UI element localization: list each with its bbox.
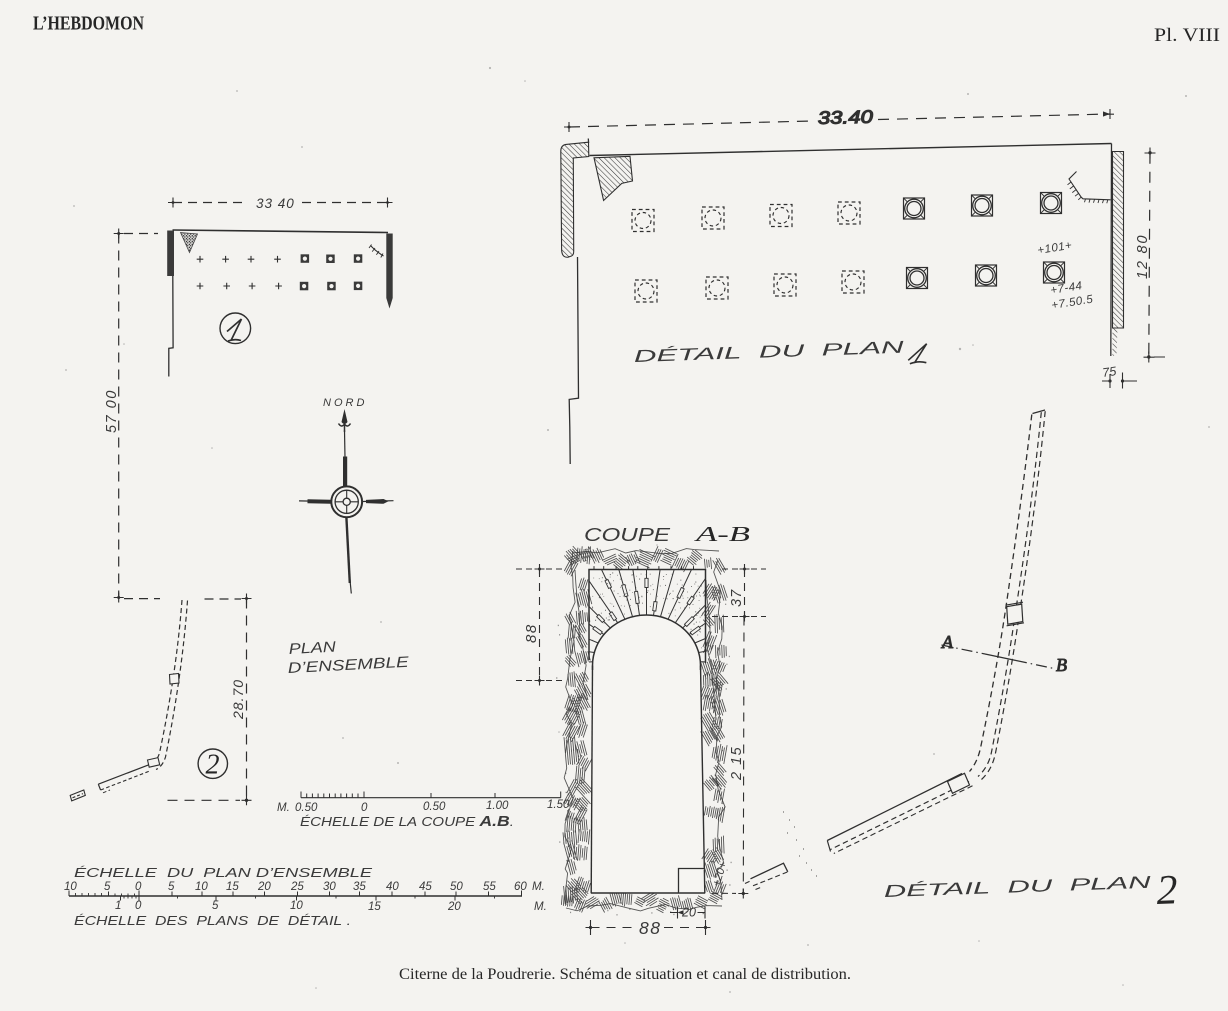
svg-text:1: 1: [115, 900, 121, 912]
svg-text:10: 10: [195, 881, 208, 893]
svg-text:88: 88: [523, 623, 540, 643]
svg-text:B: B: [1056, 655, 1067, 675]
svg-text:45: 45: [419, 881, 432, 893]
svg-text:Citerne de la Poudrerie. Schém: Citerne de la Poudrerie. Schéma de situa…: [399, 966, 851, 983]
svg-text:33 40: 33 40: [256, 196, 295, 211]
svg-text:0.50: 0.50: [295, 802, 318, 814]
svg-text:M.: M.: [277, 802, 290, 814]
svg-text:37: 37: [729, 589, 745, 607]
svg-text:30: 30: [323, 881, 336, 893]
svg-text:M.: M.: [534, 901, 547, 913]
svg-text:ÉCHELLE DU PLAN D’ENSEMBLE: ÉCHELLE DU PLAN D’ENSEMBLE: [74, 865, 372, 880]
svg-text:12 80: 12 80: [1135, 234, 1151, 279]
svg-text:50: 50: [450, 881, 463, 893]
svg-text:5: 5: [212, 900, 219, 912]
svg-text:ÉCHELLE DES PLANS DE DÉTAI: ÉCHELLE DES PLANS DE DÉTAIL .: [74, 913, 351, 928]
svg-text:L’HEBDOMON: L’HEBDOMON: [33, 14, 144, 35]
svg-text:2 15: 2 15: [729, 746, 745, 781]
svg-text:A: A: [941, 632, 954, 652]
svg-text:COUPE: COUPE: [584, 525, 671, 545]
svg-text:0: 0: [135, 900, 142, 912]
svg-text:75: 75: [1101, 364, 1117, 380]
svg-text:57 00: 57 00: [104, 389, 120, 433]
svg-text:A-B: A-B: [693, 522, 751, 546]
svg-text:20: 20: [681, 906, 696, 920]
svg-text:28.70: 28.70: [230, 679, 246, 720]
svg-text:0.50: 0.50: [423, 801, 446, 813]
svg-text:15: 15: [226, 881, 239, 893]
svg-text:55: 55: [483, 881, 496, 893]
svg-text:0: 0: [361, 802, 368, 814]
svg-text:35: 35: [353, 881, 366, 893]
svg-text:M.: M.: [532, 881, 545, 893]
svg-text:5: 5: [104, 881, 111, 893]
svg-text:60: 60: [514, 881, 527, 893]
svg-text:5: 5: [168, 881, 175, 893]
svg-text:20: 20: [257, 881, 271, 893]
svg-text:10: 10: [290, 900, 303, 912]
svg-text:25: 25: [290, 881, 304, 893]
svg-text:2: 2: [206, 750, 220, 781]
svg-text:88: 88: [639, 918, 661, 938]
svg-text:15: 15: [368, 901, 381, 913]
svg-text:1.00: 1.00: [486, 800, 509, 812]
svg-text:33.40: 33.40: [818, 107, 873, 128]
svg-text:Pl. VIII: Pl. VIII: [1154, 25, 1220, 46]
svg-text:ÉCHELLE DE LA COUPE A.B.: ÉCHELLE DE LA COUPE A.B.: [300, 814, 514, 830]
svg-text:40: 40: [386, 881, 399, 893]
svg-text:2: 2: [1156, 867, 1179, 914]
svg-text:10: 10: [64, 881, 77, 893]
svg-text:20: 20: [447, 901, 461, 913]
svg-text:PLAN: PLAN: [288, 639, 336, 658]
svg-text:1.50: 1.50: [547, 799, 570, 811]
svg-text:NORD: NORD: [323, 397, 367, 409]
